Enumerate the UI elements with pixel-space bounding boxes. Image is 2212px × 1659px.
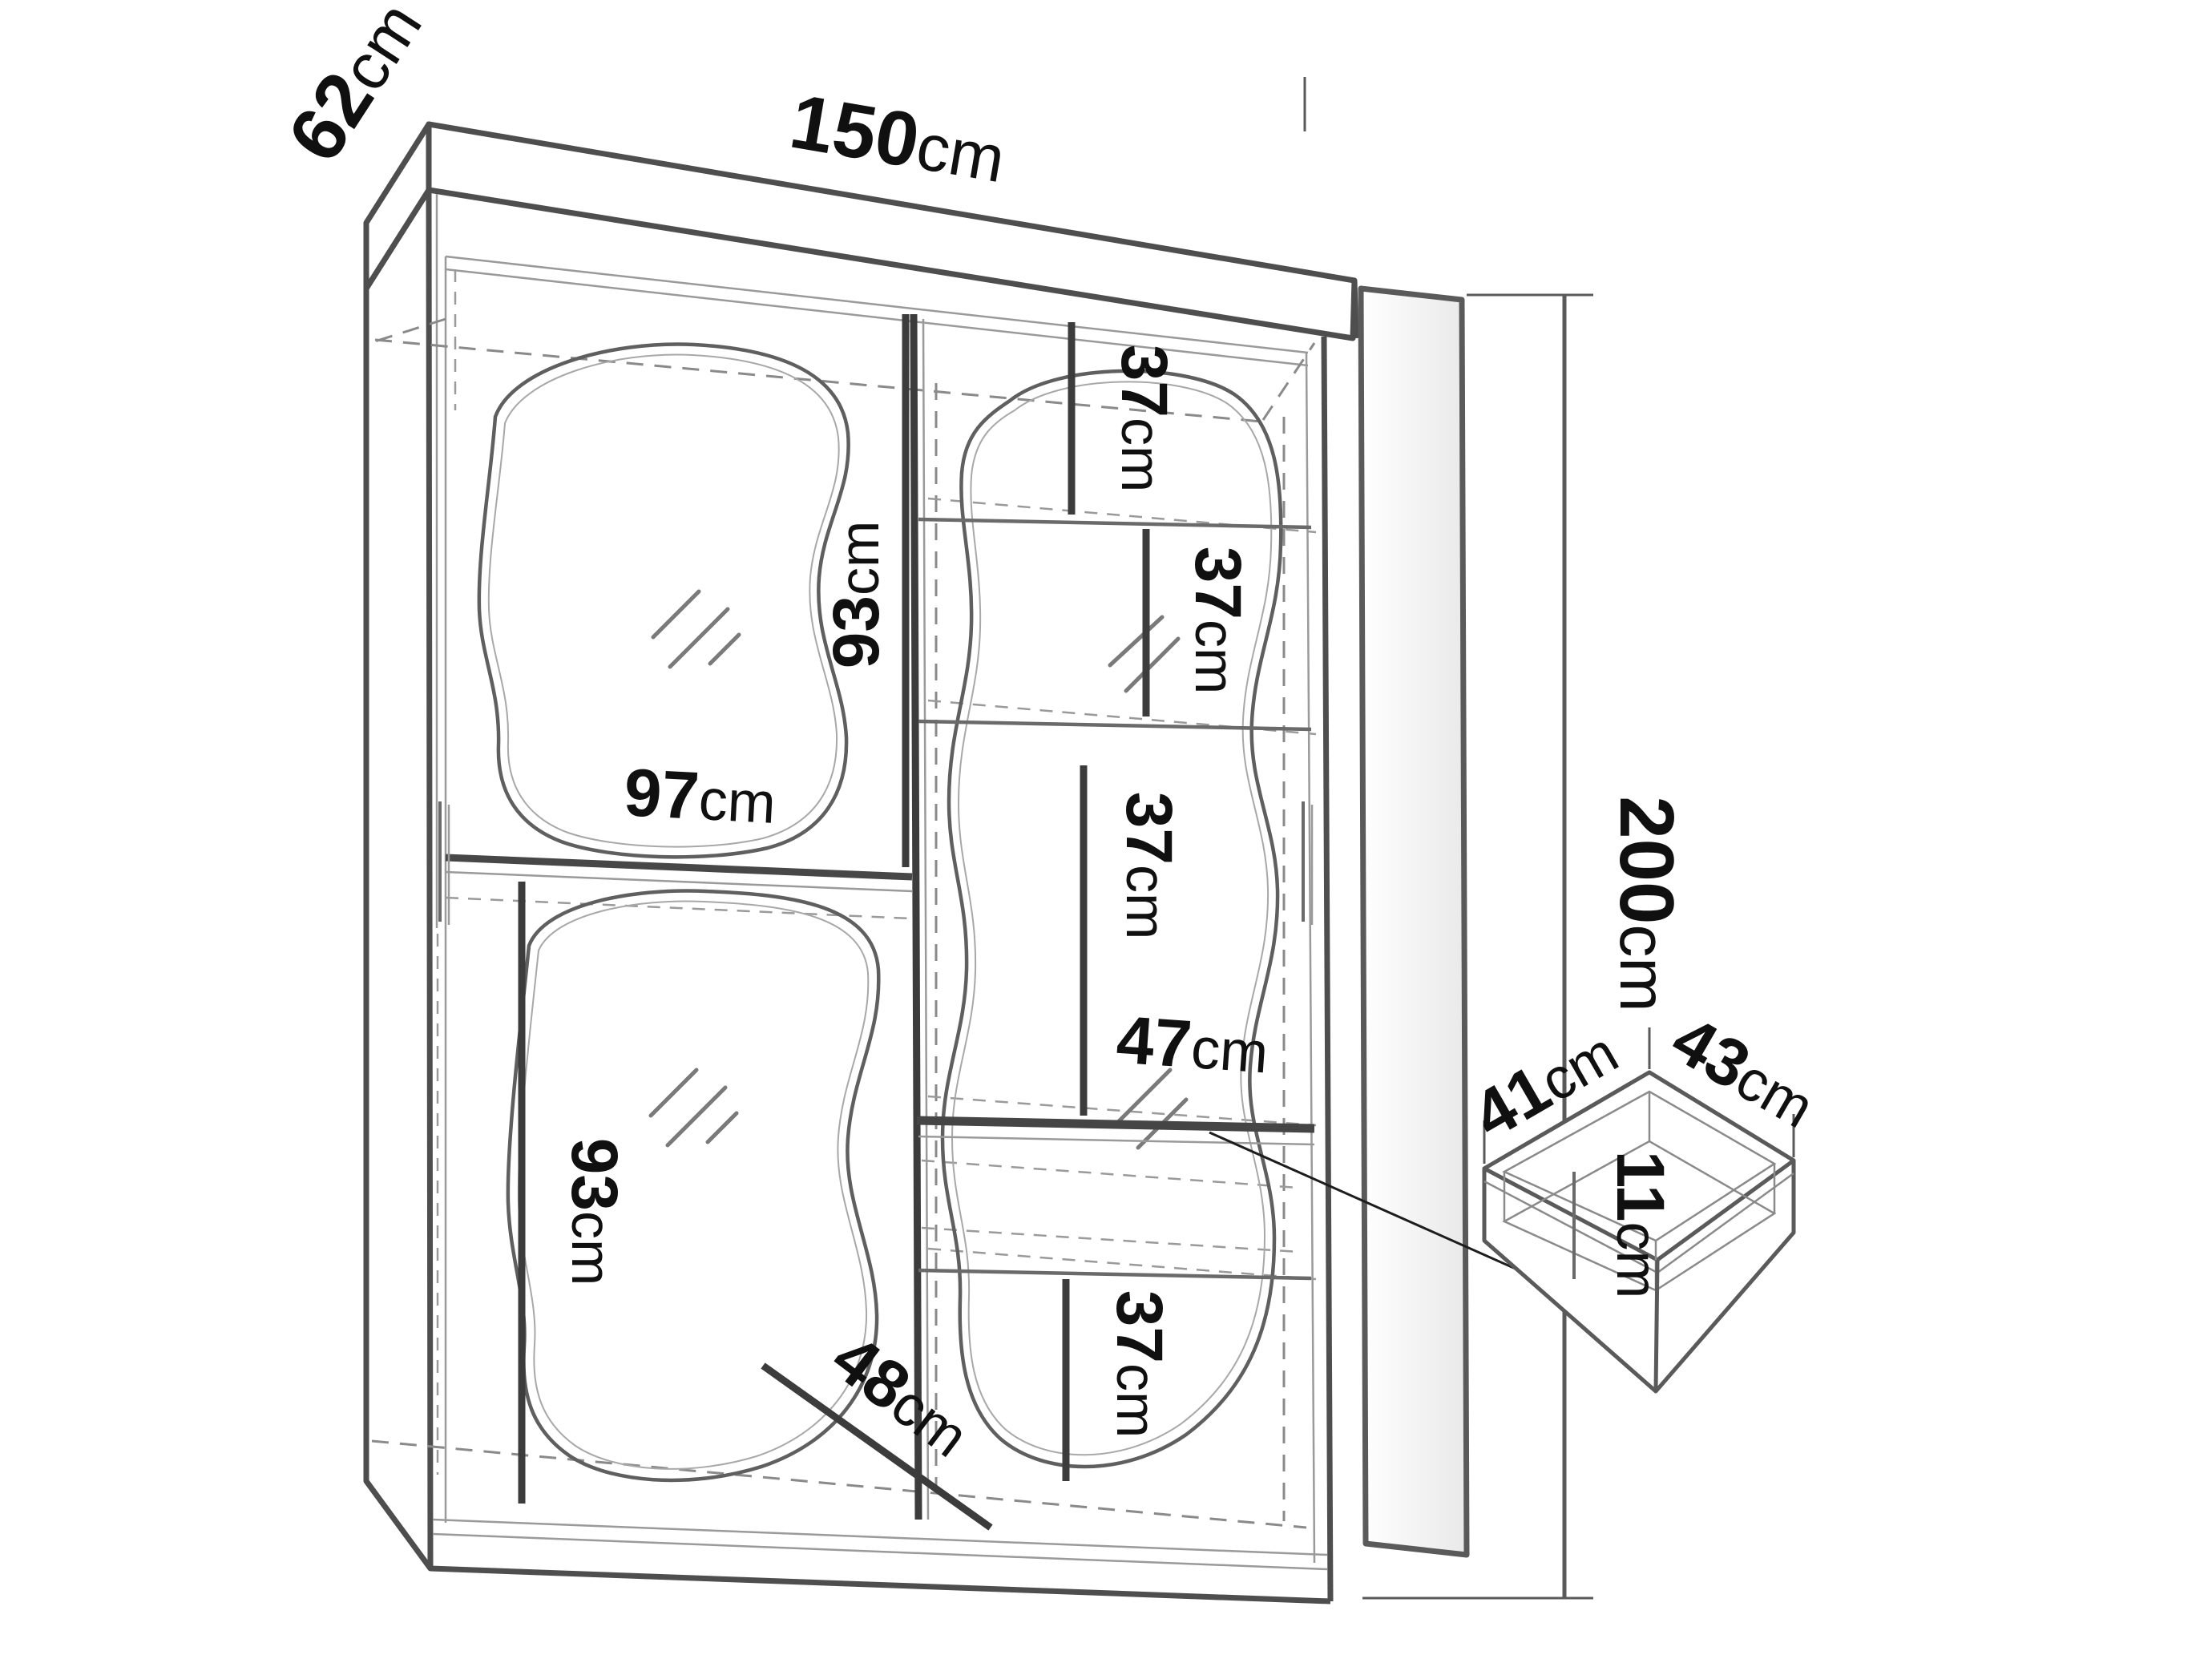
label-drawer-height-11: 11cm: [1603, 1151, 1678, 1299]
wardrobe-cornice-right-edge: [1354, 281, 1356, 338]
left-door-handle: [440, 801, 449, 925]
label-shelf-width-47: 47cm: [1114, 1002, 1271, 1088]
label-shelf-gap-2: 37cm: [1181, 547, 1254, 695]
right-door-slab: [1361, 289, 1467, 1555]
wardrobe-left-side-panel: [366, 190, 430, 1568]
door-track-2: [433, 1534, 1327, 1569]
back-bottom-edge: [372, 1441, 1306, 1528]
lower-mirror-glints: [651, 1070, 737, 1145]
label-mirror-upper-93: 93cm: [820, 521, 893, 669]
label-shelf-gap-3: 37cm: [1112, 792, 1185, 940]
center-divider-edge: [923, 319, 928, 1520]
opening-right-inner: [1306, 353, 1314, 1563]
label-rail-97: 97cm: [622, 754, 777, 838]
center-divider: [914, 314, 918, 1520]
label-width-150: 150cm: [785, 79, 1012, 199]
right-mirror-glints-lower: [1118, 1070, 1186, 1148]
label-height-200: 200cm: [1604, 796, 1689, 1011]
shelf-1: [918, 519, 1311, 527]
drawer-hidden-top: [922, 1160, 1298, 1188]
label-shelf-gap-1: 37cm: [1108, 345, 1181, 493]
wardrobe-dimension-drawing: 150cm 62cm 200cm 97cm 93cm 93cm 37cm 37c…: [0, 0, 2212, 1659]
wardrobe-bottom-edge: [430, 1568, 1330, 1601]
label-mirror-lower-93: 93cm: [558, 1138, 631, 1286]
wardrobe-right-edge: [1324, 337, 1330, 1601]
upper-mirror-glints: [653, 591, 739, 667]
drawer-hidden-bottom: [922, 1228, 1298, 1252]
shelf-3-underside: [918, 1136, 1314, 1144]
door-track-1: [433, 1520, 1327, 1555]
label-shelf-gap-4: 37cm: [1103, 1290, 1176, 1439]
diagram-canvas: 150cm 62cm 200cm 97cm 93cm 93cm 37cm 37c…: [0, 0, 2212, 1659]
